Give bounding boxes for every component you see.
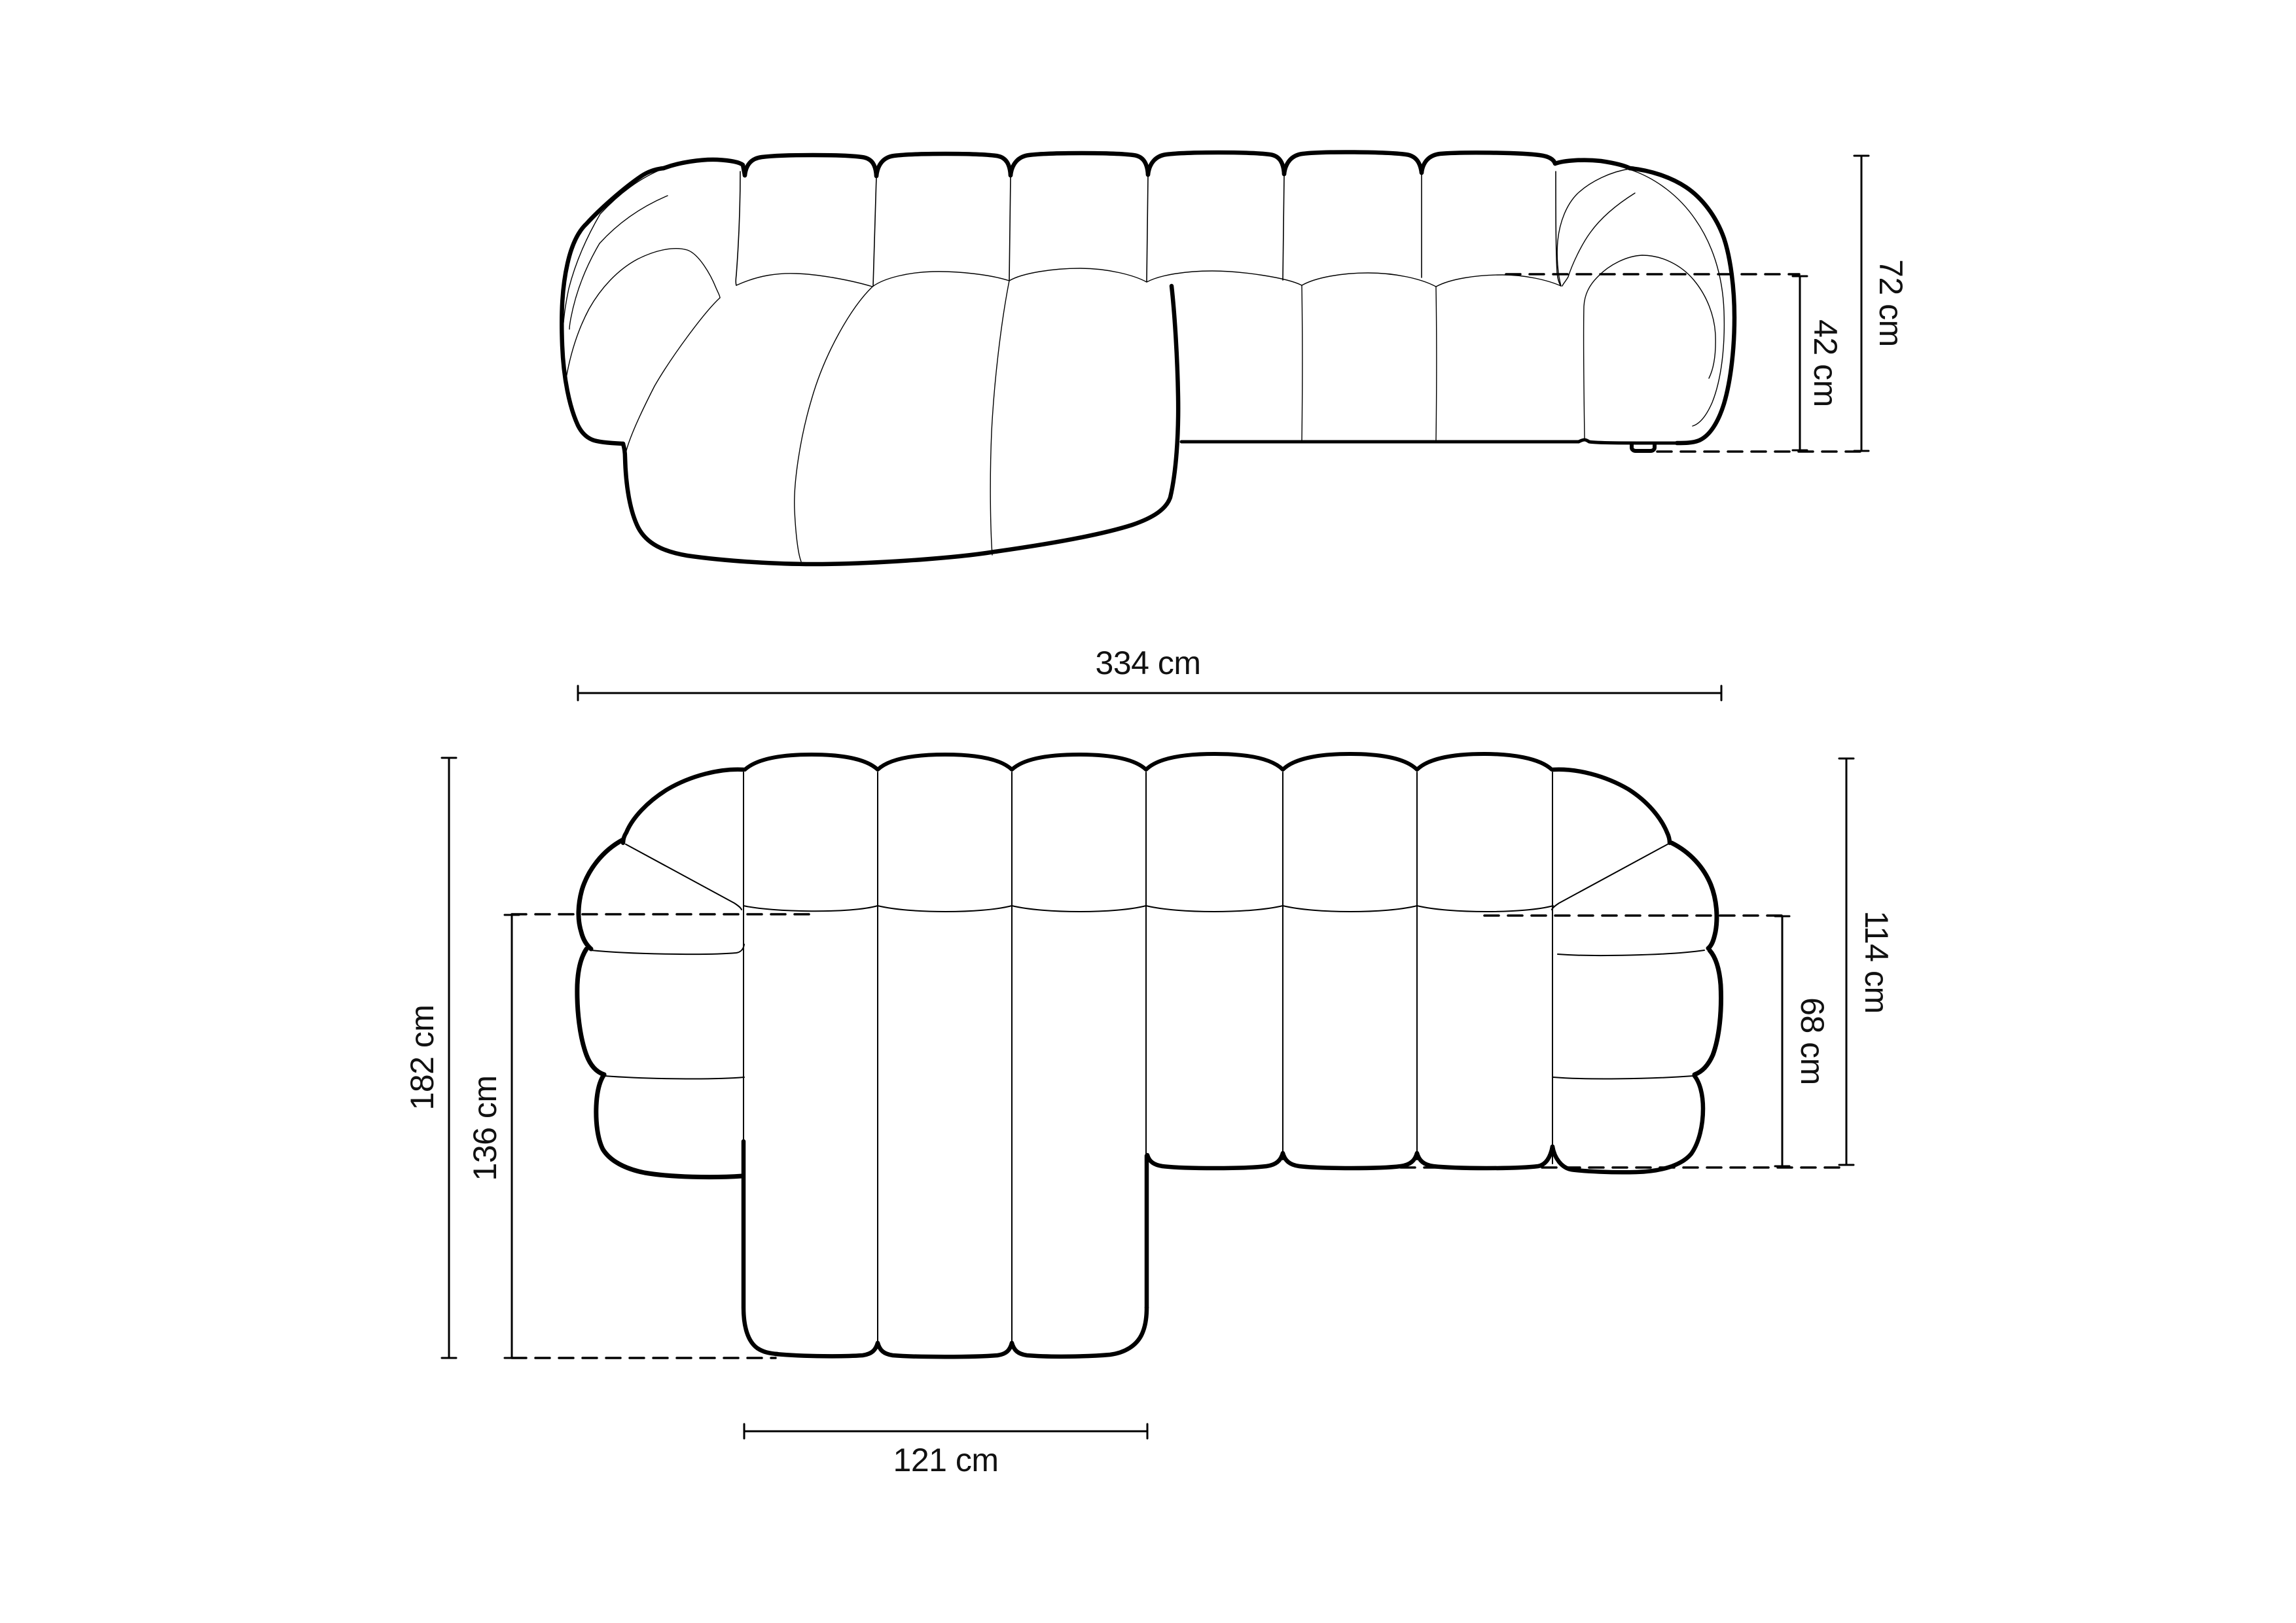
svg-text:68 cm: 68 cm xyxy=(1794,997,1831,1085)
svg-text:42 cm: 42 cm xyxy=(1807,319,1844,407)
svg-text:334 cm: 334 cm xyxy=(1096,645,1201,681)
svg-text:121 cm: 121 cm xyxy=(893,1442,999,1478)
svg-text:114 cm: 114 cm xyxy=(1858,910,1895,1013)
svg-text:136 cm: 136 cm xyxy=(467,1076,503,1181)
svg-text:72 cm: 72 cm xyxy=(1873,259,1909,347)
svg-text:182 cm: 182 cm xyxy=(404,1005,440,1111)
